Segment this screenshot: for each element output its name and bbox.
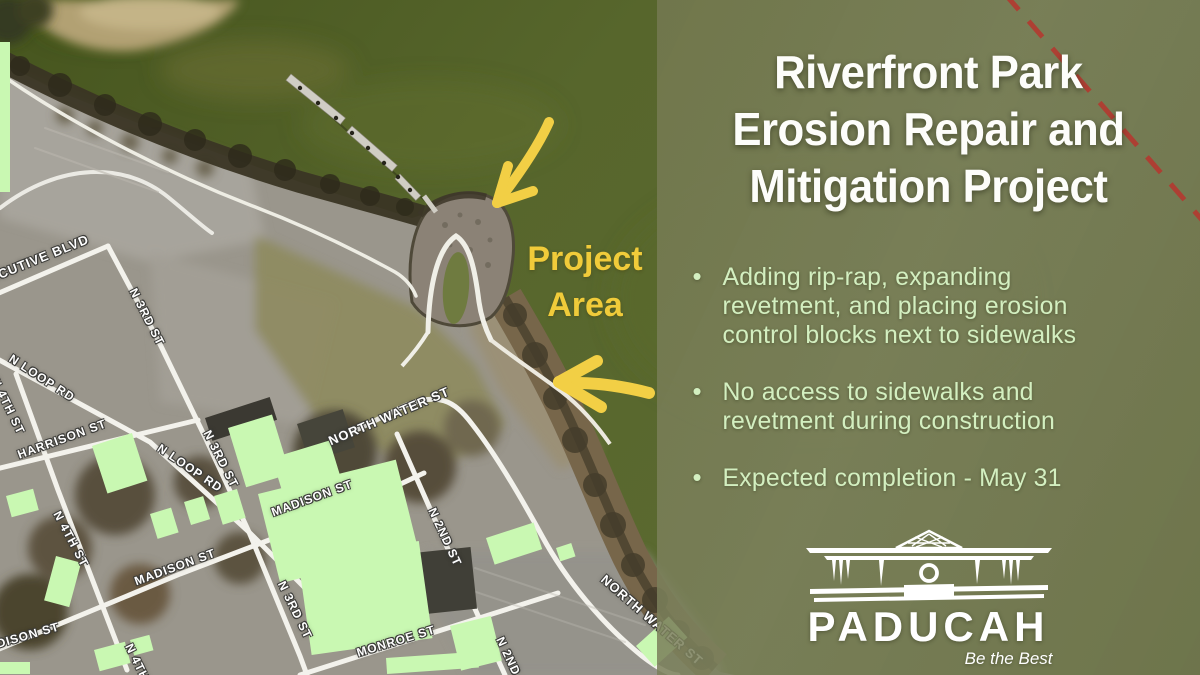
- list-item: Expected completion - May 31: [693, 464, 1179, 493]
- paducah-logo: PADUCAH Be the Best: [803, 529, 1055, 669]
- infographic: EXECUTIVE BLVD N 3RD ST N LOOP RD N 4TH …: [0, 0, 1200, 675]
- logo-city-name: PADUCAH: [808, 607, 1050, 647]
- project-area-line2: Area: [500, 282, 670, 328]
- title-line-2: Erosion Repair and: [732, 101, 1124, 158]
- title-line-3: Mitigation Project: [732, 158, 1124, 215]
- title-line-1: Riverfront Park: [732, 44, 1124, 101]
- list-item: No access to sidewalks and revetment dur…: [693, 378, 1179, 436]
- project-area-label: Project Area: [500, 236, 670, 328]
- project-area-line1: Project: [500, 236, 670, 282]
- paducah-pavilion-icon: [803, 529, 1055, 609]
- list-item: Adding rip-rap, expanding revetment, and…: [693, 263, 1179, 350]
- project-details-list: Adding rip-rap, expanding revetment, and…: [679, 263, 1179, 521]
- page-title: Riverfront Park Erosion Repair and Mitig…: [722, 44, 1135, 215]
- info-panel: Riverfront Park Erosion Repair and Mitig…: [657, 0, 1200, 675]
- logo-tagline: Be the Best: [965, 649, 1055, 669]
